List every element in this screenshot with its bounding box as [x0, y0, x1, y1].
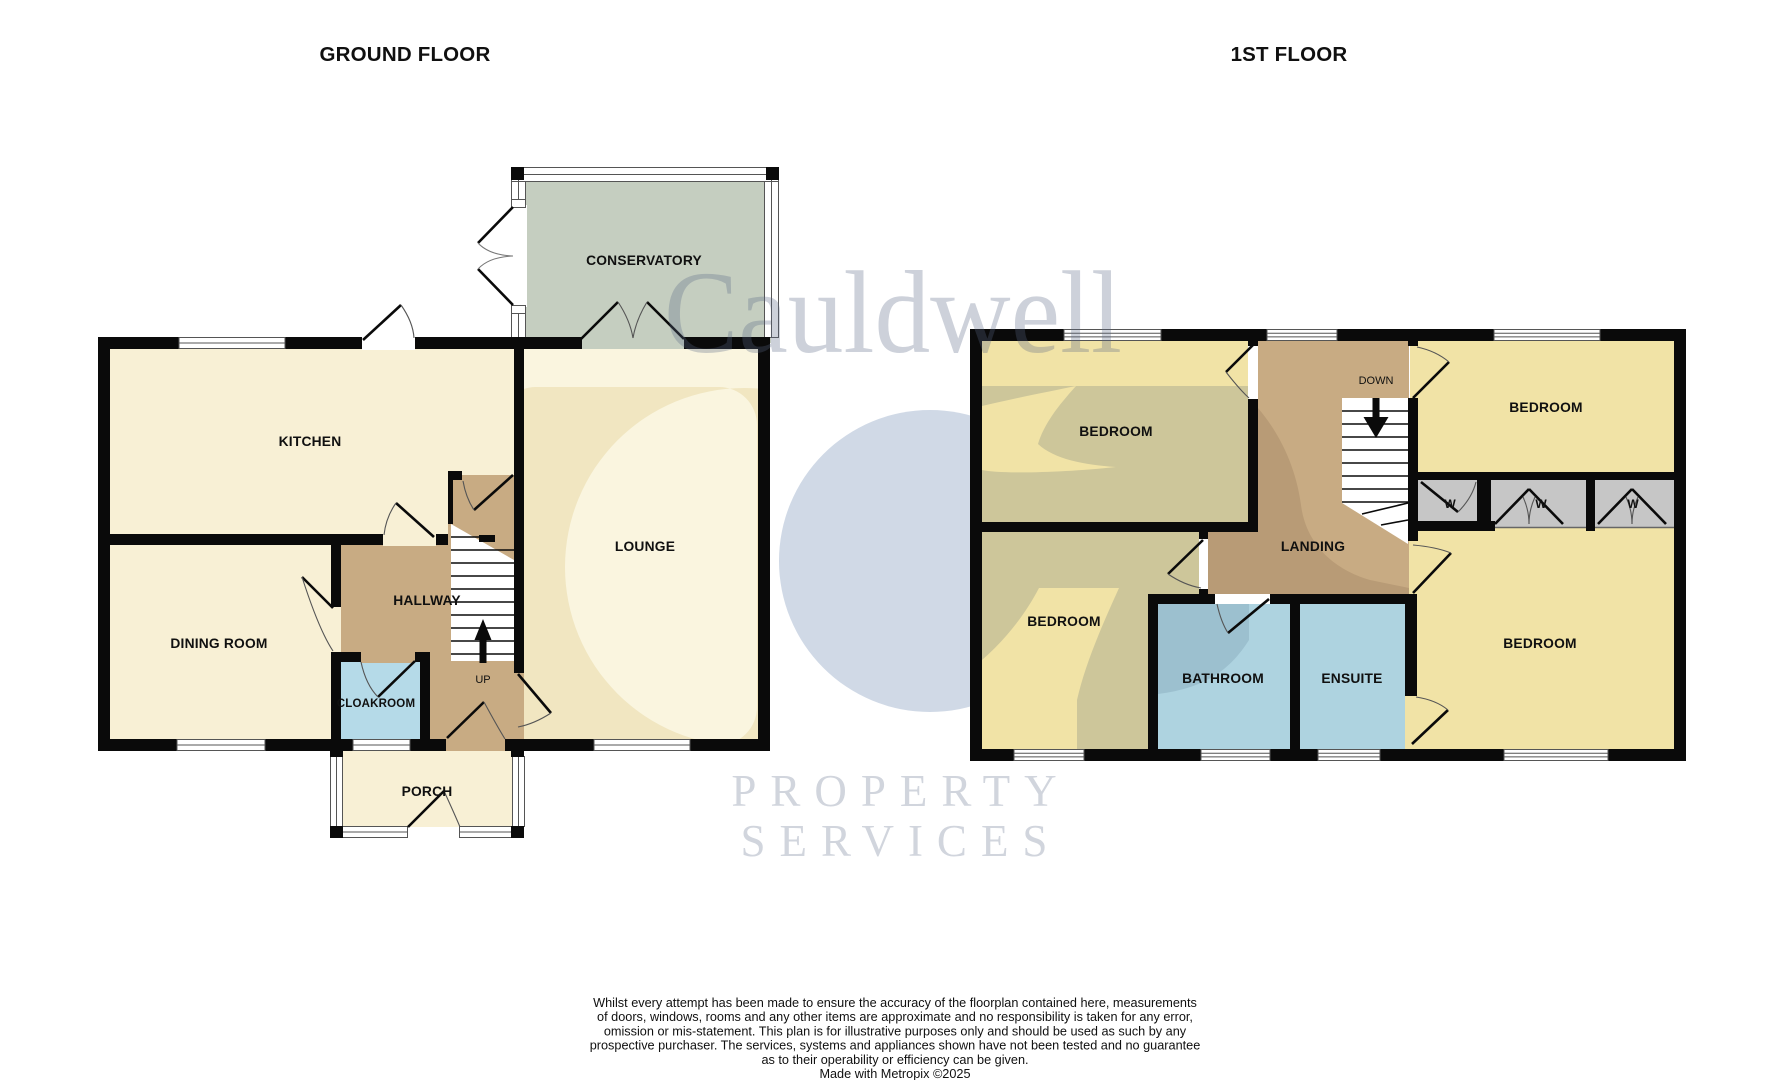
svg-text:UP: UP [475, 674, 490, 686]
svg-text:LANDING: LANDING [1281, 539, 1345, 554]
svg-text:BEDROOM: BEDROOM [1079, 424, 1152, 439]
svg-text:W: W [1627, 497, 1639, 511]
svg-text:BEDROOM: BEDROOM [1509, 400, 1582, 415]
svg-text:ENSUITE: ENSUITE [1321, 671, 1382, 686]
svg-text:Made with Metropix ©2025: Made with Metropix ©2025 [819, 1067, 970, 1080]
svg-text:PORCH: PORCH [402, 784, 453, 799]
svg-text:prospective purchaser. The ser: prospective purchaser. The services, sys… [590, 1039, 1201, 1053]
svg-text:KITCHEN: KITCHEN [279, 434, 342, 449]
svg-text:DOWN: DOWN [1359, 375, 1394, 387]
svg-text:of doors, windows, rooms and a: of doors, windows, rooms and any other i… [597, 1010, 1193, 1024]
svg-text:GROUND FLOOR: GROUND FLOOR [320, 43, 491, 66]
svg-text:Whilst every attempt has been: Whilst every attempt has been made to en… [593, 996, 1197, 1010]
svg-text:1ST FLOOR: 1ST FLOOR [1231, 43, 1348, 66]
svg-text:Cauldwell: Cauldwell [664, 247, 1122, 378]
svg-text:HALLWAY: HALLWAY [393, 593, 461, 608]
svg-text:CLOAKROOM: CLOAKROOM [337, 698, 415, 710]
svg-text:BATHROOM: BATHROOM [1182, 671, 1264, 686]
svg-text:omission or mis-statement. Thi: omission or mis-statement. This plan is … [604, 1024, 1187, 1038]
svg-text:SERVICES: SERVICES [741, 816, 1062, 866]
svg-text:BEDROOM: BEDROOM [1503, 636, 1576, 651]
svg-text:as to their operability or eff: as to their operability or efficiency ca… [761, 1053, 1028, 1067]
svg-text:LOUNGE: LOUNGE [615, 539, 675, 554]
svg-text:W: W [1444, 497, 1456, 511]
svg-text:W: W [1535, 497, 1547, 511]
svg-text:BEDROOM: BEDROOM [1027, 614, 1100, 629]
svg-text:PROPERTY: PROPERTY [731, 766, 1070, 816]
svg-text:DINING ROOM: DINING ROOM [170, 636, 267, 651]
